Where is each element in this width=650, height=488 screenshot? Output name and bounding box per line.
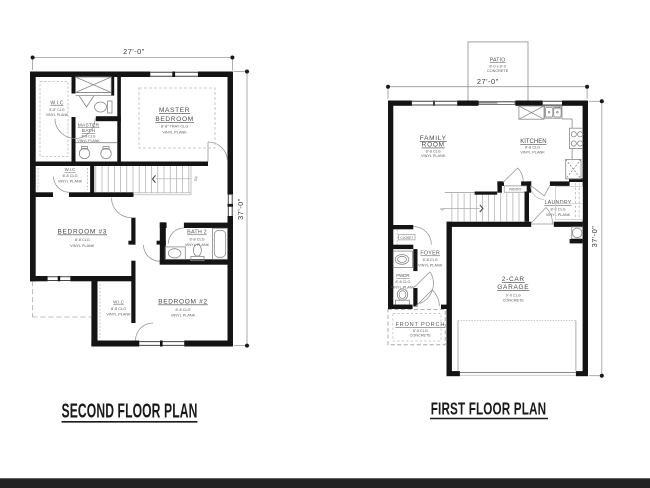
svg-text:PANTRY: PANTRY xyxy=(509,188,523,192)
svg-text:27'-0": 27'-0" xyxy=(123,47,145,56)
svg-text:8'-8" CLG: 8'-8" CLG xyxy=(49,108,64,112)
svg-text:VINYL PLANK: VINYL PLANK xyxy=(162,131,187,135)
svg-text:37'-0": 37'-0" xyxy=(590,226,599,248)
svg-text:VINYL PLANK: VINYL PLANK xyxy=(421,154,446,158)
svg-text:PATIO: PATIO xyxy=(490,57,506,63)
svg-text:VINYL PLANK: VINYL PLANK xyxy=(46,113,69,117)
svg-text:37'-0": 37'-0" xyxy=(236,198,245,220)
svg-text:ROOM: ROOM xyxy=(422,142,445,149)
svg-text:FOYER: FOYER xyxy=(420,251,440,257)
svg-text:9'-0 CLG: 9'-0 CLG xyxy=(506,294,521,298)
svg-text:BATH: BATH xyxy=(82,128,96,134)
svg-text:VINYL PLANK: VINYL PLANK xyxy=(58,180,83,184)
svg-text:LAUNDRY: LAUNDRY xyxy=(544,200,571,206)
svg-text:W.I.C: W.I.C xyxy=(50,101,63,107)
svg-text:VINYL PLANK: VINYL PLANK xyxy=(70,244,95,248)
svg-text:8'-0 CLG: 8'-0 CLG xyxy=(413,329,428,333)
svg-text:8'-8 CLG: 8'-8 CLG xyxy=(75,238,90,242)
svg-text:CONCRETE: CONCRETE xyxy=(487,69,509,73)
svg-text:GARAGE: GARAGE xyxy=(497,284,529,291)
svg-text:BATH 2: BATH 2 xyxy=(187,230,207,236)
svg-text:D.W: D.W xyxy=(555,105,561,109)
svg-text:FIRST FLOOR PLAN: FIRST FLOOR PLAN xyxy=(431,399,547,419)
svg-text:SECOND FLOOR PLAN: SECOND FLOOR PLAN xyxy=(62,401,198,423)
svg-text:8'-8 CLG: 8'-8 CLG xyxy=(423,258,438,262)
svg-text:27'-0": 27'-0" xyxy=(477,77,499,86)
svg-text:DN: DN xyxy=(194,176,199,182)
svg-text:BEDROOM: BEDROOM xyxy=(155,116,194,123)
svg-text:VINYL PLANK: VINYL PLANK xyxy=(106,313,131,317)
svg-text:8'-8" TRAY CLG: 8'-8" TRAY CLG xyxy=(161,125,188,129)
svg-text:W.I.C: W.I.C xyxy=(65,167,76,172)
svg-text:MASTER: MASTER xyxy=(78,123,100,129)
svg-text:BEDROOM #2: BEDROOM #2 xyxy=(158,299,208,306)
svg-text:CONCRETE: CONCRETE xyxy=(410,334,432,338)
svg-text:VINYL PLANK: VINYL PLANK xyxy=(418,264,443,268)
svg-text:VINYL PLANK: VINYL PLANK xyxy=(171,314,196,318)
svg-text:KITCHEN: KITCHEN xyxy=(520,139,546,145)
svg-text:8'-8 CLG: 8'-8 CLG xyxy=(189,238,204,242)
svg-text:FRONT PORCH: FRONT PORCH xyxy=(395,322,445,328)
svg-text:PWDR: PWDR xyxy=(396,273,409,278)
svg-text:8'-0 x 8'-0: 8'-0 x 8'-0 xyxy=(489,64,505,68)
svg-text:2-CAR: 2-CAR xyxy=(502,276,525,283)
svg-text:VINYL PLANK: VINYL PLANK xyxy=(185,243,210,247)
svg-text:CONCRETE: CONCRETE xyxy=(503,299,525,303)
svg-text:8'-8 CLG: 8'-8 CLG xyxy=(550,208,565,212)
svg-text:MASTER: MASTER xyxy=(159,107,190,114)
svg-text:8'-8 CLG: 8'-8 CLG xyxy=(62,174,77,178)
svg-text:VINYL PLANK: VINYL PLANK xyxy=(520,151,545,155)
svg-text:W.I.C: W.I.C xyxy=(113,300,124,305)
svg-text:VINYL PLANK: VINYL PLANK xyxy=(546,213,571,217)
svg-text:BEDROOM #3: BEDROOM #3 xyxy=(57,229,107,236)
svg-text:up: up xyxy=(441,207,445,211)
svg-text:8'-8 CLG: 8'-8 CLG xyxy=(82,134,96,138)
svg-text:8'-8 CLG: 8'-8 CLG xyxy=(525,146,540,150)
svg-text:CLOSET: CLOSET xyxy=(400,236,413,240)
svg-text:8'-8 CLG: 8'-8 CLG xyxy=(426,149,441,153)
svg-text:8'-8 CLG: 8'-8 CLG xyxy=(175,308,190,312)
svg-text:8'-8 CLG: 8'-8 CLG xyxy=(395,280,410,284)
svg-text:8'-8 CLG: 8'-8 CLG xyxy=(111,307,126,311)
